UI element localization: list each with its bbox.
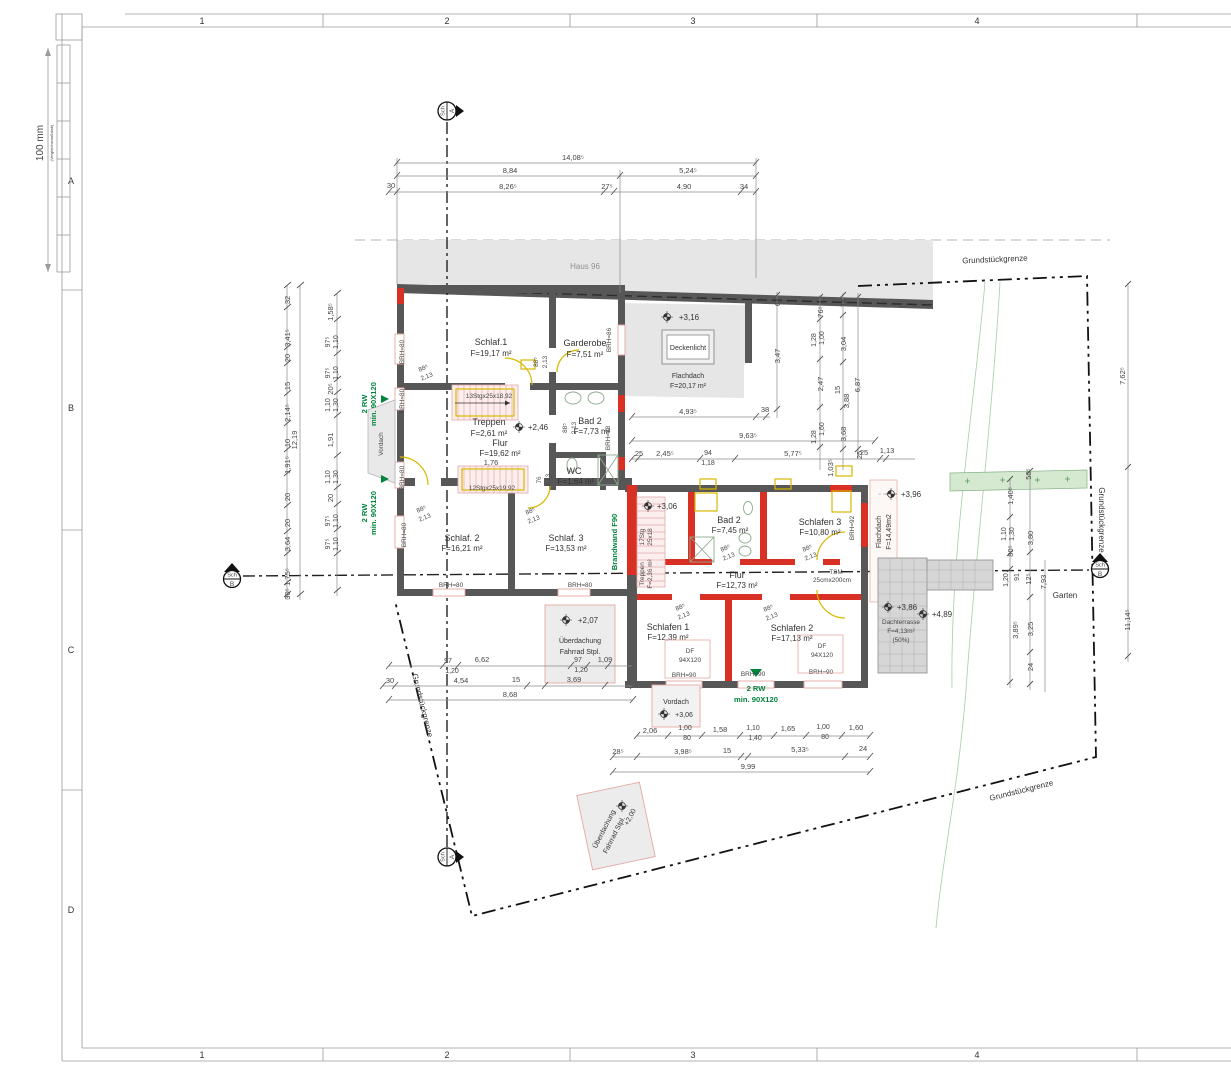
dim-label: 91 [1014, 573, 1021, 581]
dim-label: 3,89⁵ [1011, 621, 1020, 639]
room-bad2dg-area: F=7,45 m² [712, 526, 749, 535]
dim-label: 2,06 [643, 726, 658, 735]
row-label-d: D [68, 905, 75, 915]
dim-label: 1,20 [1003, 573, 1010, 587]
dim-label: 8,84 [503, 166, 518, 175]
dim-label: 1,60 [849, 723, 864, 732]
rw-left2-line1: 2 RW [360, 503, 369, 523]
garten-label: Garten [1053, 591, 1077, 600]
dim-label: 1,10 [325, 470, 332, 484]
vordach-bottom-box [652, 685, 700, 727]
stair-dg-steps: 17Stg [639, 528, 646, 545]
room-schlafen3-area: F=10,80 m² [799, 528, 840, 537]
dim-label: 1,30 [1009, 527, 1016, 541]
dim-label: 3,98⁵ [674, 747, 692, 756]
dim-label: 25 [635, 449, 643, 458]
dim-label: 3,69 [567, 675, 582, 684]
dim-label: 9,63⁵ [739, 431, 757, 440]
dim-label: 7,93 [1039, 575, 1048, 590]
dim-label: 1,91⁵ [283, 456, 292, 474]
dim-label: 97⁵ [325, 539, 332, 550]
dim-label: 32 [283, 296, 292, 304]
dim-label: 1,10 [333, 366, 340, 380]
brh-label: BRH=90 [809, 669, 834, 676]
dim-label: 80 [821, 734, 829, 741]
section-marker-a-bottom: Sch A [438, 848, 464, 866]
level-246: +2,46 [528, 423, 549, 432]
dim-label: 1,30 [333, 398, 340, 412]
brh-label: BRH=80 [399, 465, 406, 490]
dim-label: 67 [773, 298, 782, 306]
room-flur1-name: Flur [492, 438, 508, 448]
room-schlaf2-area: F=16,21 m² [441, 544, 482, 553]
svg-text:Sch: Sch [441, 852, 447, 862]
row-label-a: A [68, 176, 74, 186]
svg-text:B: B [230, 581, 234, 588]
dim-label: 30 [387, 181, 395, 190]
terrace-pct: (50%) [892, 637, 909, 644]
room-schlaf3-area: F=13,53 m² [545, 544, 586, 553]
dim-label: 97 [444, 658, 452, 665]
level-316: +3,16 [679, 313, 700, 322]
dim-label: 1,20 [574, 667, 588, 674]
dim-label: 94 [704, 450, 712, 457]
dim-label: 2,45⁵ [656, 449, 674, 458]
rw-left1-line1: 2 RW [360, 394, 369, 414]
dim-label: 20 [326, 494, 335, 502]
door-size: 88⁵ [533, 357, 540, 367]
rw-bottom-line2: min. 90X120 [734, 695, 778, 704]
skylight-label: Deckenlicht [670, 345, 706, 352]
dim-label: 1,10 [333, 514, 340, 528]
svg-text:A: A [449, 854, 456, 859]
dim-label: 14,08⁵ [562, 153, 584, 162]
dormer-label: DF [818, 643, 827, 650]
dim-label: 1,09 [598, 655, 613, 664]
brh-label: BRH=88 [605, 425, 612, 450]
room-wc-name: WC [567, 466, 582, 476]
col-label-1b: 1 [199, 1050, 204, 1060]
drawing-sheet: 1 2 3 4 1 2 3 4 A B C D 100 mm (Vergleic… [0, 0, 1231, 1080]
dim-label: 1,40 [748, 735, 762, 742]
dim-label: 1,18 [701, 460, 715, 467]
dim-label: 20 [283, 354, 292, 362]
svg-text:B: B [1098, 571, 1102, 578]
dim-label: 12⁵ [1024, 573, 1033, 584]
stair-upper-label: 13Stgx25x18,92 [466, 393, 513, 400]
dim-label: 3,68 [839, 427, 848, 442]
col-label-3: 3 [690, 16, 695, 26]
dim-label: 3,25 [1026, 622, 1035, 637]
level-386: +3,86 [897, 603, 918, 612]
dim-label: 27⁵ [601, 182, 612, 191]
dim-label: 38 [761, 405, 769, 414]
room-schlafen1-name: Schlafen 1 [647, 622, 690, 632]
room-schlafen3-name: Schlafen 3 [799, 517, 842, 527]
dim-label: 5,77⁵ [784, 449, 802, 458]
planting-strip [950, 470, 1087, 491]
dim-label: 76⁵ [816, 306, 825, 317]
brh-label: BRH=80 [399, 339, 406, 364]
dim-label: 3,41⁵ [283, 329, 292, 347]
door-size: 2,13 [545, 473, 552, 486]
dim-label: 1,40⁵ [1006, 487, 1015, 505]
flat-roof-2-area: F=14,49m2 [886, 514, 893, 550]
col-label-1: 1 [199, 16, 204, 26]
svg-text:Sch: Sch [441, 106, 447, 116]
dim-label: 1,91 [326, 433, 335, 448]
neighbor-label: Haus 96 [570, 262, 600, 271]
vordach-left-label: Vordach [378, 432, 385, 456]
room-schlafen1-area: F=12,39 m² [647, 633, 688, 642]
dim-label: 1,28 [811, 333, 818, 347]
room-bad2og-name: Bad 2 [578, 416, 602, 426]
dim-label: 97 [574, 657, 582, 664]
boundary-label-right: Grundstückgrenze [1097, 487, 1106, 553]
dim-label: 1,65 [781, 724, 796, 733]
dim-label: 7,62⁵ [1118, 367, 1127, 385]
dim-label: 8,68 [503, 690, 518, 699]
dim-label: 11,14⁵ [1123, 609, 1132, 630]
dim-label: 9,99 [741, 762, 756, 771]
room-schlaf2-name: Schlaf. 2 [444, 533, 479, 543]
dim-label: 3,47 [773, 349, 782, 364]
dim-label: 4,90 [677, 182, 692, 191]
carport1-level: +2,07 [578, 616, 599, 625]
dim-label: 3,64 [283, 537, 292, 552]
col-label-4b: 4 [974, 1050, 979, 1060]
tsm-size: 25cmx200cm [813, 577, 851, 584]
dim-label: 1,03⁵ [826, 459, 835, 477]
dim-label: 2,14⁵ [283, 404, 292, 422]
room-flur1-area: F=19,62 m² [479, 449, 520, 458]
dim-label: 20 [283, 493, 292, 501]
door-size: 2,13 [571, 421, 578, 434]
dim-label: 10 [283, 439, 292, 447]
dim-label: 25 [855, 451, 864, 459]
dim-label: 1,10 [746, 725, 760, 732]
dim-label: 6,62 [475, 655, 490, 664]
svg-text:A: A [449, 108, 456, 113]
room-garderobe-area: F=7,51 m² [567, 350, 604, 359]
col-label-2: 2 [444, 16, 449, 26]
row-label-b: B [68, 403, 74, 413]
tsm-label: TSM [829, 569, 843, 576]
stair-dg-steps2: 25x18 [647, 528, 654, 546]
section-marker-a-top: Sch A [438, 102, 464, 120]
stair-dg-area: F=2,36 m² [647, 559, 654, 588]
dim-label: 30⁵ [283, 588, 292, 599]
col-label-2b: 2 [444, 1050, 449, 1060]
rw-bottom-line1: 2 RW [747, 684, 767, 693]
dim-label: 1,60 [819, 422, 826, 436]
flat-roof-1-name: Flachdach [672, 373, 704, 380]
terrain-contour [936, 282, 1000, 928]
room-bad2dg-name: Bad 2 [717, 515, 741, 525]
rw-left2-line2: min. 90X120 [369, 491, 378, 535]
dim-label: 1,75⁵ [283, 568, 292, 586]
dim-label: 3,88 [842, 394, 851, 409]
dim-label: 1,10 [333, 537, 340, 551]
dim-label: 24 [1026, 663, 1035, 671]
room-flur2-area: F=12,73 m² [716, 581, 757, 590]
door-size: 2,13 [542, 355, 549, 368]
room-garderobe-name: Garderobe [563, 338, 606, 348]
flat-roof-2-name: Flachdach [876, 516, 883, 548]
dim-label: 50⁵ [1024, 468, 1033, 479]
dim-label: 1,58 [713, 725, 728, 734]
brh-label: BRH=90 [741, 671, 766, 678]
dim-label: 97⁵ [325, 516, 332, 527]
dim-label: 15 [723, 746, 731, 755]
brh-label: BRH=86 [606, 327, 613, 352]
dim-label: 1,00 [678, 725, 692, 732]
scale-label: 100 mm [35, 125, 46, 161]
stair-upper [452, 385, 518, 420]
carport1-label2: Fahrrad Stpl. [560, 649, 601, 656]
brh-label: BRH=80 [568, 582, 593, 589]
dim-label: 15 [833, 386, 842, 394]
stair-dg-name: Treppen [639, 562, 646, 586]
room-schlaf3-name: Schlaf. 3 [548, 533, 583, 543]
flat-roof-1-area: F=20,17 m² [670, 383, 707, 390]
brh-label: BRH=80 [399, 388, 406, 413]
dim-label: 30 [386, 676, 394, 685]
terrace-name: Dachterrasse [882, 619, 920, 626]
svg-text:Sch: Sch [227, 573, 237, 579]
dim-label: 74 [839, 299, 848, 307]
boundary-label-left: Grundstückgrenze [410, 673, 435, 739]
level-396: +3,96 [901, 490, 922, 499]
dim-label: 28⁵ [612, 747, 623, 756]
dim-label: 80⁵ [1006, 545, 1015, 556]
dim-label: 20⁵ [326, 383, 335, 394]
level-489: +4,89 [932, 610, 953, 619]
scale-bar: 100 mm (Vergleichsmaßstab) [35, 45, 70, 272]
floor-plan-canvas: 1 2 3 4 1 2 3 4 A B C D 100 mm (Vergleic… [0, 0, 1231, 1080]
section-marker-b-left: Sch B [224, 563, 241, 588]
rw-left1-line2: min. 90X120 [369, 382, 378, 426]
dim-label: 1,10 [325, 398, 332, 412]
dim-label: 4,54 [454, 676, 469, 685]
dim-label: 1,58⁵ [326, 303, 335, 321]
dim-label: 1,10 [1001, 527, 1008, 541]
dim-label: 5,24⁵ [679, 166, 697, 175]
dim-label: 2,47 [816, 377, 825, 392]
dim-label: 1,13 [880, 446, 895, 455]
dim-label: 1,20 [445, 668, 459, 675]
dim-label: 6,87 [853, 378, 862, 393]
dim-label: 20 [283, 519, 292, 527]
dim-label: 80 [683, 735, 691, 742]
dim-label: 5,33⁵ [791, 745, 809, 754]
dim-label: 1,00 [816, 724, 830, 731]
firewall-label: Brandwand F90 [610, 514, 619, 571]
col-label-3b: 3 [690, 1050, 695, 1060]
terrace-area: F=4,13m² [887, 628, 915, 635]
dormer-size: 94X120 [679, 657, 701, 664]
dim-label: 1,28 [811, 430, 818, 444]
boundary-label-top: Grundstückgrenze [962, 254, 1028, 266]
room-flur2-name: Flur [729, 570, 745, 580]
room-treppen1-name: Treppen [472, 417, 505, 427]
brh-label: BRH=80 [439, 582, 464, 589]
door-size: 76 [536, 476, 543, 484]
scale-sublabel: (Vergleichsmaßstab) [49, 124, 54, 161]
dormer-size: 94X120 [811, 652, 833, 659]
room-wc-area: F=1,64 m² [558, 477, 595, 486]
col-label-4: 4 [974, 16, 979, 26]
dim-label: 15 [512, 675, 520, 684]
brh-label: BRH=92 [849, 515, 856, 540]
section-marker-b-right: Sch B [1092, 553, 1109, 578]
door-size: 88⁵ [562, 423, 569, 433]
dim-label: 24 [859, 744, 867, 753]
dim-label: 1,10 [333, 335, 340, 349]
dim-label: 4,93⁵ [679, 407, 697, 416]
carport1-label1: Überdachung [559, 637, 601, 645]
dim-label: 3,04 [839, 337, 848, 352]
room-flur1-dim: 1,76 [484, 458, 499, 467]
vordach-bottom-label: Vordach [663, 699, 689, 706]
vordach-bottom-level: +3,06 [675, 712, 693, 719]
level-306: +3,06 [657, 502, 678, 511]
dim-label: 1,00 [819, 331, 826, 345]
brh-label: BRH=80 [401, 522, 408, 547]
dim-label: 34 [740, 182, 748, 191]
room-schlaf1-name: Schlaf.1 [475, 337, 508, 347]
row-label-c: C [68, 645, 75, 655]
dormer-label: DF [686, 648, 695, 655]
room-schlafen2-name: Schlafen 2 [771, 623, 814, 633]
room-schlaf1-area: F=19,17 m² [470, 349, 511, 358]
svg-text:Sch: Sch [1095, 563, 1105, 569]
dim-label: 1,30 [333, 470, 340, 484]
room-treppen1-area: F=2,61 m² [471, 429, 508, 438]
dim-label: 97⁵ [325, 337, 332, 348]
dim-label: 97⁵ [325, 368, 332, 379]
dim-label: 8,26⁵ [499, 182, 517, 191]
dim-label: 3,80 [1026, 531, 1035, 546]
dim-label: 15 [283, 382, 292, 390]
stair-lower-label: 12Stgx25x19,92 [469, 485, 516, 492]
